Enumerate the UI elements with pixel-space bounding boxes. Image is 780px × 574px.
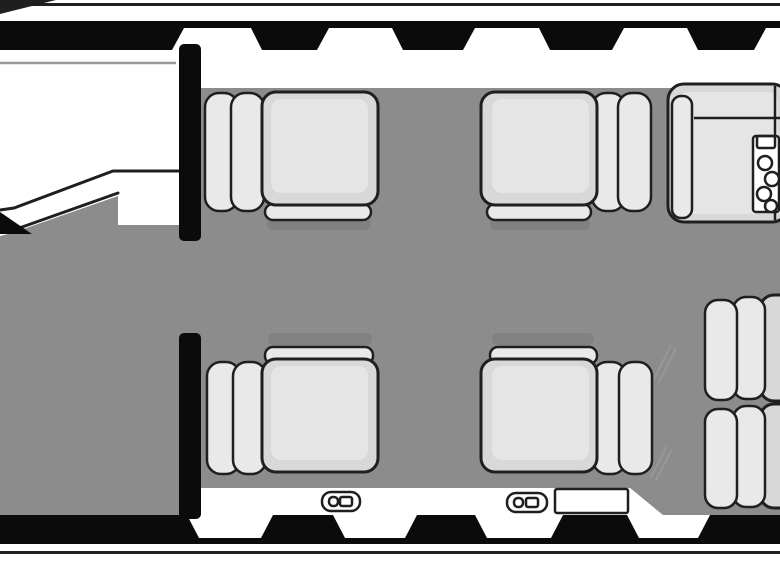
refreshment-cabinet [668, 84, 780, 222]
seat-back-cushion [705, 300, 737, 400]
cup-rack-icon [753, 136, 779, 212]
forward-floor [0, 196, 180, 516]
door-latch-icon [507, 493, 547, 512]
cabin-window-icon [612, 28, 698, 50]
floorplan-canvas [0, 0, 780, 574]
forward-bulkhead [179, 44, 201, 241]
cabin-window-icon [475, 515, 563, 538]
lower-skin-line [0, 551, 780, 554]
seat-back-cushion [619, 362, 652, 474]
club-seat-forward-left [205, 92, 378, 230]
cabin-window-icon [333, 515, 417, 538]
cabin-window-icon [187, 515, 273, 538]
door-latch-icon [322, 492, 360, 511]
club-seat-forward-right [481, 92, 651, 230]
seat-back-cushion [231, 93, 264, 211]
upper-skin-line [0, 3, 780, 6]
cabinet-side-cushion [672, 96, 692, 218]
side-seat-upper [705, 295, 780, 401]
cabin-window-icon [463, 28, 550, 50]
exit-marker [555, 489, 628, 513]
cabin-window-icon [627, 515, 710, 538]
seat-back-cushion [705, 409, 737, 508]
seat-back-cushion [618, 93, 651, 211]
aircraft-floorplan [0, 0, 780, 574]
cabin-window-icon [317, 28, 403, 50]
aft-bulkhead [179, 333, 201, 519]
side-seat-lower [705, 404, 780, 508]
